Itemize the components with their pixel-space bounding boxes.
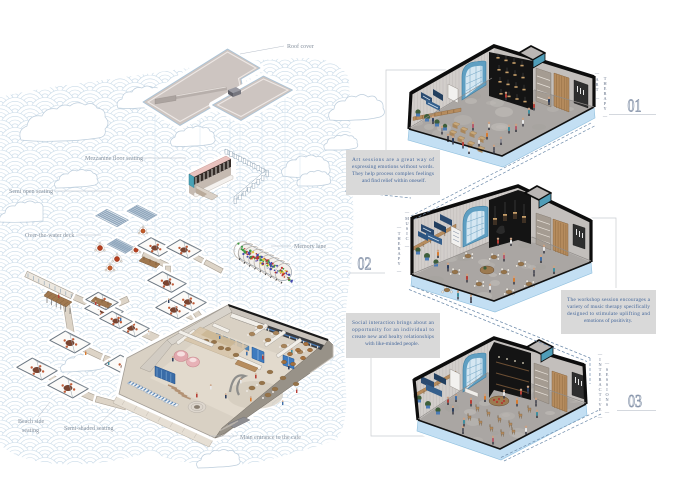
svg-text:01: 01 [628,97,642,116]
svg-text:create new and healty relation: create new and healty relationships [352,334,434,340]
svg-text:emotions of positivity.: emotions of positivity. [584,317,632,324]
svg-text:Semi-shaded seating: Semi-shaded seating [64,426,114,432]
svg-text:Social interaction brings abou: Social interaction brings about an [352,320,434,326]
svg-text:Beach side: Beach side [18,419,44,425]
svg-text:Over-the-water deck: Over-the-water deck [25,233,74,239]
svg-text:Y: Y [397,261,400,266]
svg-text:03: 03 [628,393,642,412]
svg-text:—: — [594,95,600,100]
svg-text:—: — [594,70,600,75]
svg-text:—: — [597,414,603,419]
svg-text:Memory lane: Memory lane [294,244,326,250]
svg-text:—: — [602,113,608,118]
svg-text:expressing emotions without wo: expressing emotions without words. [352,164,434,170]
svg-text:Main entrance to the cafe: Main entrance to the cafe [240,434,301,441]
svg-text:and find relief within oneself: and find relief within oneself. [362,177,426,184]
svg-text:—: — [404,243,410,248]
svg-text:opportunity for an individual: opportunity for an individual to [352,326,434,333]
svg-text:—: — [604,360,610,365]
svg-text:Y: Y [603,106,606,111]
svg-text:variety of music therapy speci: variety of music therapy specifically [567,303,650,310]
svg-text:Art sessions are a great way o: Art sessions are a great way of [352,156,434,163]
svg-text:They help process complex feel: They help process complex feelings [352,170,434,177]
svg-text:02: 02 [358,255,372,274]
svg-text:seating: seating [22,428,39,434]
svg-text:designed to stimulate upliftin: designed to stimulate uplifting and [567,310,650,317]
svg-text:Mezzanine floor seating: Mezzanine floor seating [85,155,143,162]
svg-text:—: — [597,351,603,356]
svg-text:E: E [599,407,602,412]
svg-text:—: — [396,224,402,229]
svg-text:Roof cover: Roof cover [287,43,314,50]
svg-text:with like-minded people.: with like-minded people. [365,341,419,347]
svg-text:Semi open seating: Semi open seating [9,189,53,195]
svg-text:—: — [396,268,402,273]
svg-text:—: — [604,409,610,414]
svg-text:—: — [404,209,410,214]
svg-text:T: T [596,87,599,92]
svg-text:C: C [406,236,409,241]
svg-text:The workshop session encourage: The workshop session encourages a [567,297,651,303]
